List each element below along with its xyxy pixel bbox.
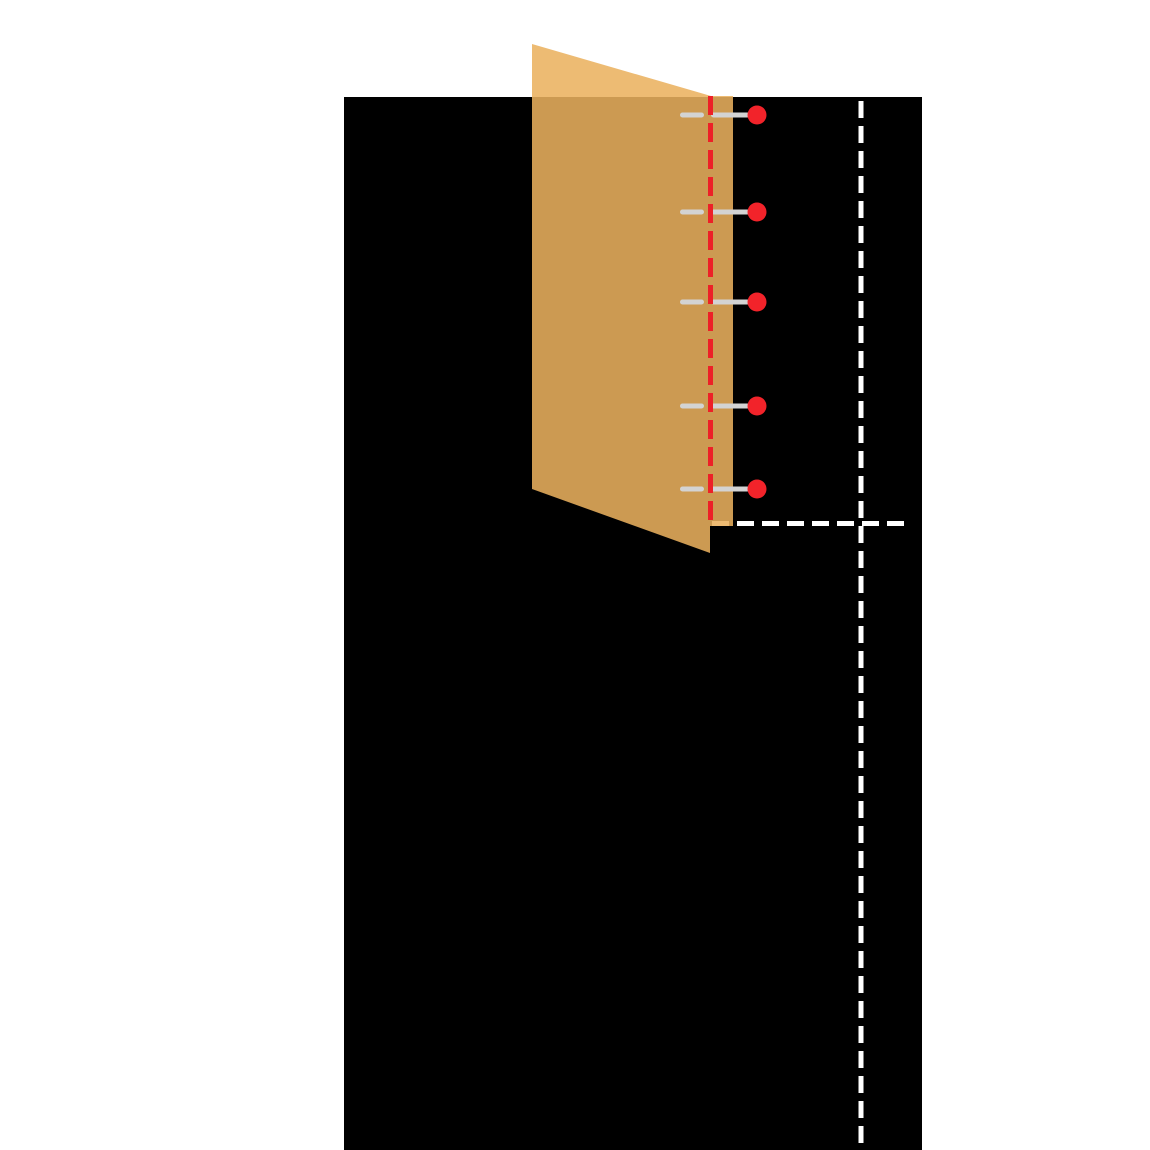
pin-shaft — [711, 210, 750, 215]
pin-tip — [680, 404, 704, 409]
pin-head-icon — [748, 480, 767, 499]
pin-tip — [680, 113, 704, 118]
diagram-canvas — [0, 0, 1150, 1150]
pin-head-icon — [748, 106, 767, 125]
pin-shaft — [711, 113, 750, 118]
pin-shaft — [711, 300, 750, 305]
pin-shaft — [711, 487, 750, 492]
pin-head-icon — [748, 397, 767, 416]
pin-head-icon — [748, 293, 767, 312]
pin-head-icon — [748, 203, 767, 222]
fabric-strip — [532, 44, 733, 553]
pin-shaft — [711, 404, 750, 409]
binding-diagram — [0, 0, 1150, 1150]
pin-tip — [680, 487, 704, 492]
pin-tip — [680, 210, 704, 215]
pin-tip — [680, 300, 704, 305]
